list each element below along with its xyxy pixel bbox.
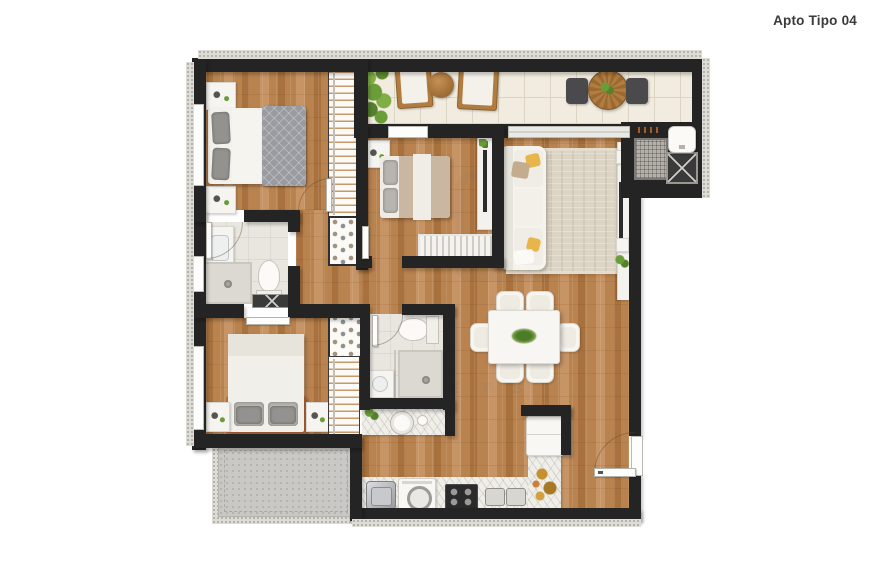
- laundry-tub: [366, 481, 396, 510]
- elevator-shaft-icon: [666, 152, 698, 184]
- toilet-bowl: [398, 318, 428, 341]
- toilet-tank: [426, 316, 439, 344]
- door-handle-icon: [598, 471, 603, 474]
- bed-runner-white: [413, 154, 431, 220]
- balcony-chair-dark: [566, 78, 588, 104]
- wall-top: [192, 58, 706, 72]
- door-leaf-bedroom2: [362, 226, 369, 259]
- bedroom2-tv: [483, 150, 487, 212]
- floor-plan-page: E T S: [0, 0, 870, 580]
- nightstand: [206, 402, 230, 432]
- sink-basin: [485, 488, 505, 506]
- dining-centerpiece: [512, 329, 536, 343]
- bathroom-sink: [366, 370, 394, 398]
- bathroom-cabinet: [252, 294, 292, 308]
- wall-living-right: [629, 186, 641, 436]
- sideboard-plant: [479, 139, 488, 148]
- facade-strip-bottom: [352, 519, 641, 527]
- toilet-bowl: [258, 260, 280, 292]
- bed-sheet: [232, 110, 264, 182]
- refrigerator: [526, 416, 564, 456]
- sofa-pillow-white: [513, 249, 534, 265]
- facade-strip-left: [186, 62, 194, 446]
- sofa: [500, 146, 546, 270]
- wardrobe-closet: [328, 356, 360, 438]
- wall-bathroom1-right: [288, 210, 300, 232]
- sink-basin: [372, 376, 388, 392]
- chair-cushion: [462, 68, 494, 106]
- wall-master-bottom: [192, 434, 362, 448]
- bed-pillow: [270, 406, 296, 424]
- chair-cushion: [400, 68, 428, 104]
- facade-strip-top: [198, 50, 702, 59]
- light-switch-panel: [616, 238, 629, 252]
- laundry-tub-basin: [371, 487, 392, 506]
- nightstand: [306, 402, 330, 432]
- door-leaf-master: [246, 317, 290, 325]
- shower-drain-icon: [224, 280, 232, 288]
- wall-bedroom2-right: [492, 124, 504, 268]
- shower-area: [398, 350, 443, 398]
- nightstand: [206, 186, 236, 214]
- washer-controls: [402, 481, 432, 484]
- wall-bedroom1-balcony: [354, 58, 368, 134]
- facade-strip-right: [702, 58, 710, 198]
- sliding-door-balcony: [508, 126, 630, 138]
- cooktop: [445, 484, 478, 510]
- balcony-chair-dark: [626, 78, 648, 104]
- sofa-throw-blanket: [513, 194, 543, 218]
- wall-bedroom1-bottom: [192, 210, 206, 222]
- window-bedroom2: [388, 126, 428, 138]
- external-area-dashed-line: [224, 450, 348, 512]
- wall-bathroom2-left: [360, 304, 370, 410]
- bed-pillow: [211, 112, 231, 145]
- bed-master: [228, 334, 304, 432]
- vessel-sink: [390, 411, 414, 435]
- closet-rail: [333, 67, 335, 215]
- balcony-side-table: [428, 72, 454, 98]
- sink-basin: [506, 488, 526, 506]
- shower-drain-icon: [422, 376, 430, 384]
- wall-bedroom2-bottom: [402, 256, 504, 268]
- toilet: [398, 316, 438, 342]
- closet-rail: [333, 359, 335, 435]
- wall-bathroom2-right: [443, 304, 455, 410]
- counter-decor-gold: [532, 462, 558, 508]
- nightstand: [206, 82, 236, 110]
- bed-pillow: [383, 160, 398, 185]
- soap-dish: [417, 415, 428, 426]
- elevator-car-icon: [634, 138, 668, 180]
- bed-pillow: [211, 148, 231, 181]
- window-bathroom1: [193, 256, 204, 292]
- ac-condenser-icon: [668, 126, 696, 153]
- page-title: Apto Tipo 04: [773, 13, 857, 28]
- wall-master-top: [288, 304, 366, 318]
- living-small-plant: [615, 254, 629, 270]
- wall-nook-right: [561, 405, 571, 455]
- sofa-pillow-tan: [511, 161, 530, 179]
- wall-bathroom2-bottom: [370, 398, 455, 409]
- window-master: [193, 346, 204, 430]
- shower-glass-line: [394, 350, 396, 398]
- kitchen-double-sink: [484, 486, 526, 507]
- bed-single: [380, 156, 450, 218]
- ac-condenser-detail: [679, 145, 685, 149]
- shoe-cabinet: [328, 312, 362, 358]
- door-leaf-entry: [594, 468, 636, 477]
- wall-master-top: [192, 304, 244, 318]
- shower-area: [204, 262, 252, 304]
- table-centerpiece-plant: [600, 82, 614, 96]
- wall-vanity-end: [445, 409, 455, 436]
- core-vent-ticks: [638, 127, 662, 133]
- window-bedroom1: [193, 104, 204, 186]
- bed-folded-blanket: [228, 334, 304, 356]
- bed-double: [208, 108, 304, 184]
- bed-pillow: [383, 188, 398, 213]
- bed-pillow: [236, 406, 262, 424]
- bed-duvet-patterned: [262, 106, 306, 186]
- refrigerator-door-line: [527, 434, 563, 435]
